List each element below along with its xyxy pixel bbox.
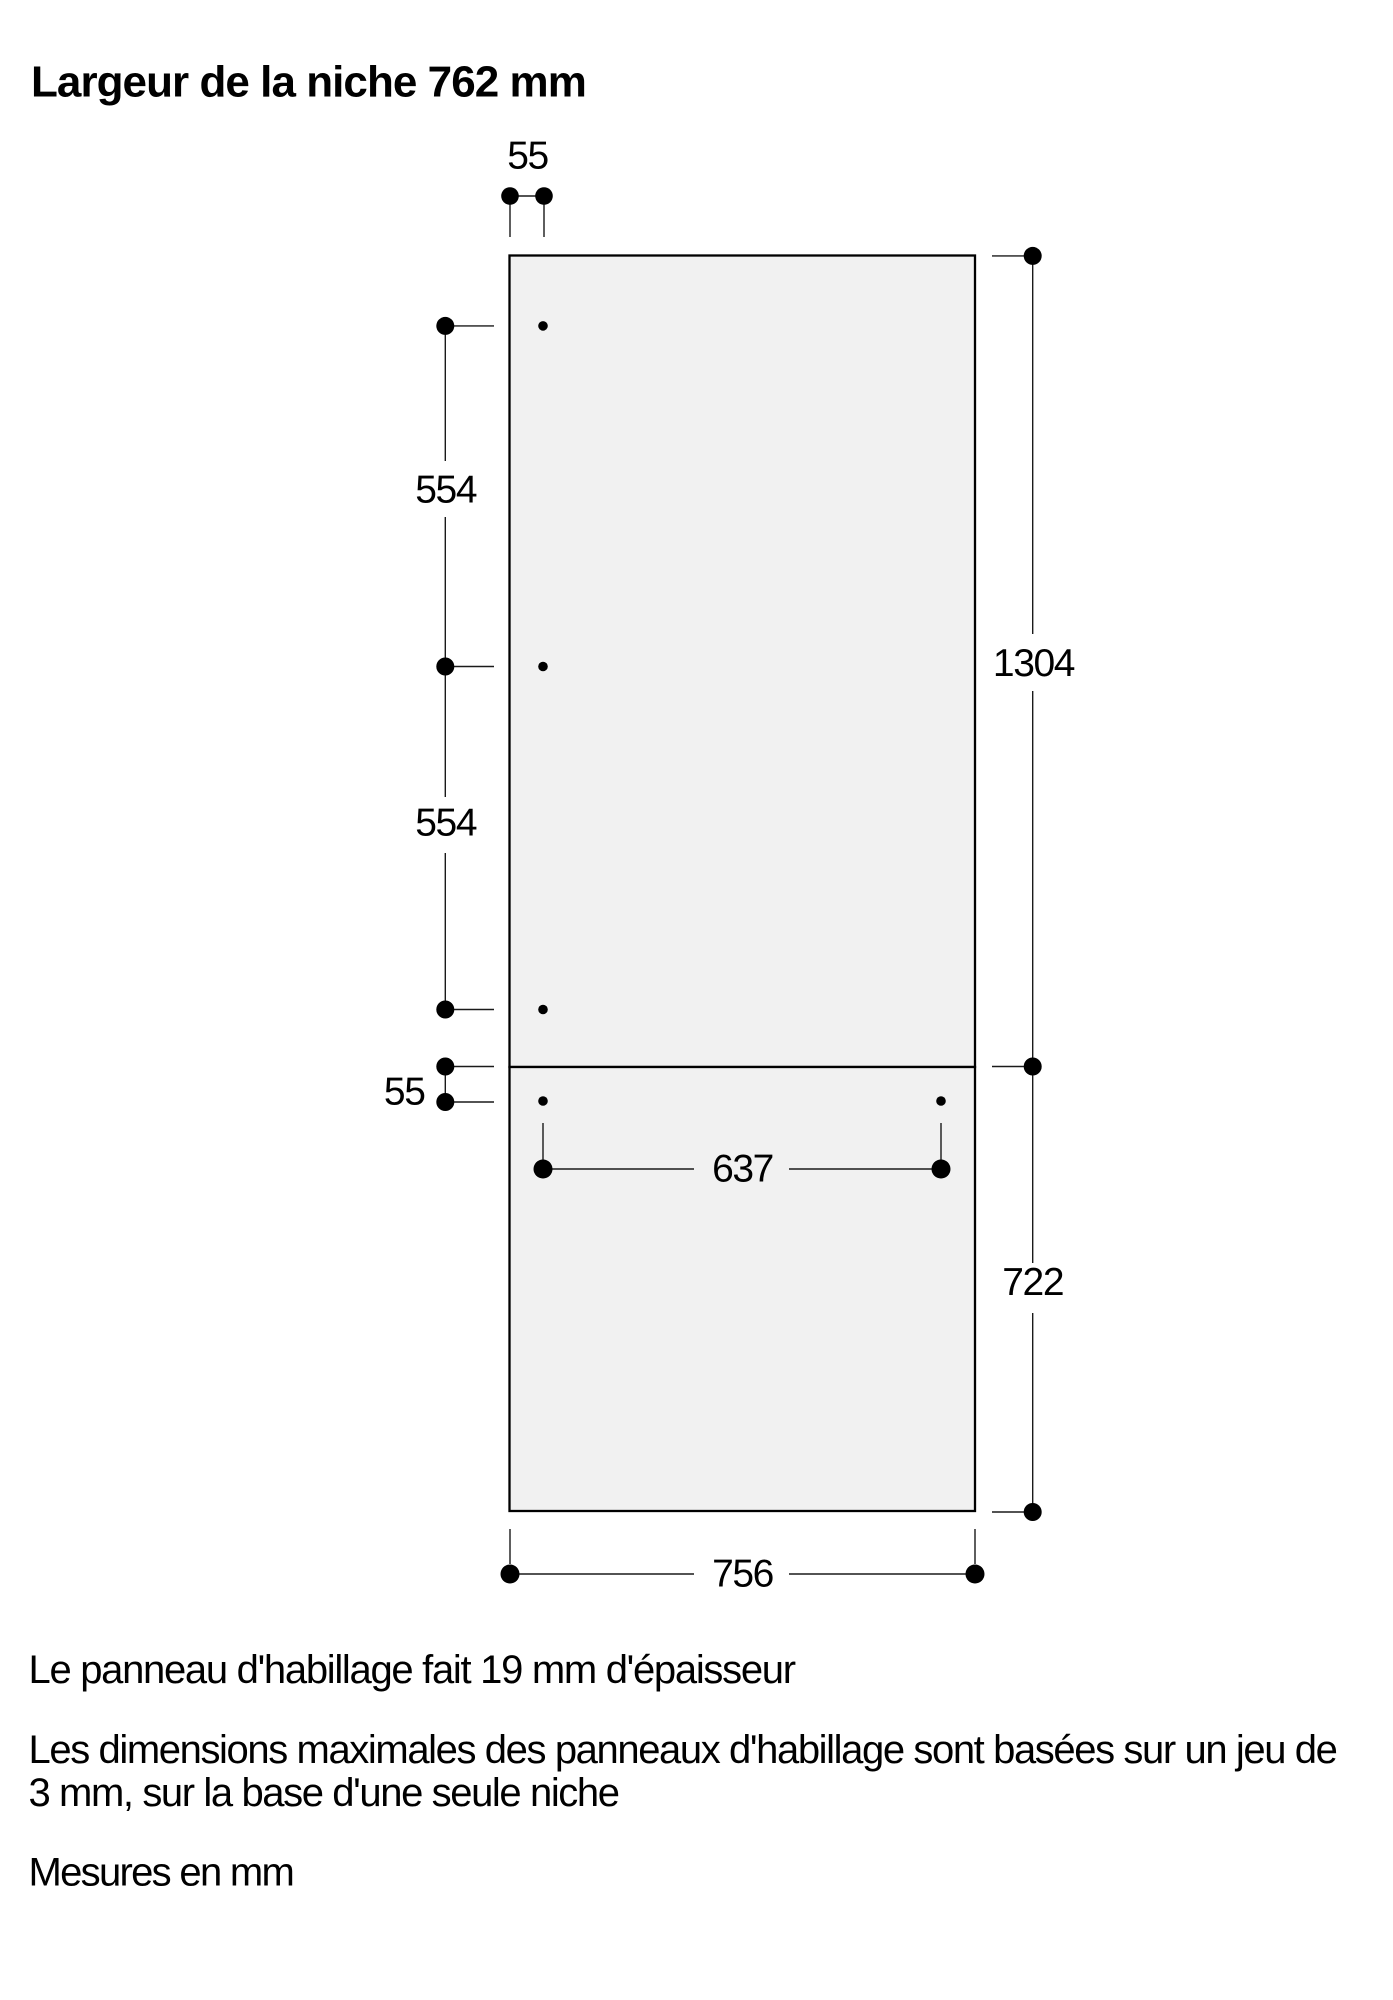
svg-text:Largeur de la niche 762 mm: Largeur de la niche 762 mm — [31, 58, 586, 107]
svg-text:3 mm, sur la base d'une seule: 3 mm, sur la base d'une seule niche — [29, 1771, 619, 1815]
svg-text:554: 554 — [415, 469, 477, 512]
svg-text:55: 55 — [384, 1071, 425, 1114]
svg-text:554: 554 — [415, 802, 477, 845]
svg-text:722: 722 — [1002, 1261, 1063, 1304]
svg-text:637: 637 — [712, 1148, 773, 1191]
svg-text:1304: 1304 — [993, 642, 1075, 685]
svg-text:55: 55 — [507, 135, 548, 178]
svg-text:Les dimensions maximales des p: Les dimensions maximales des panneaux d'… — [29, 1728, 1337, 1772]
svg-text:756: 756 — [712, 1553, 773, 1596]
svg-text:Mesures en mm: Mesures en mm — [29, 1851, 294, 1895]
svg-text:Le panneau d'habillage fait 19: Le panneau d'habillage fait 19 mm d'épai… — [29, 1648, 796, 1692]
